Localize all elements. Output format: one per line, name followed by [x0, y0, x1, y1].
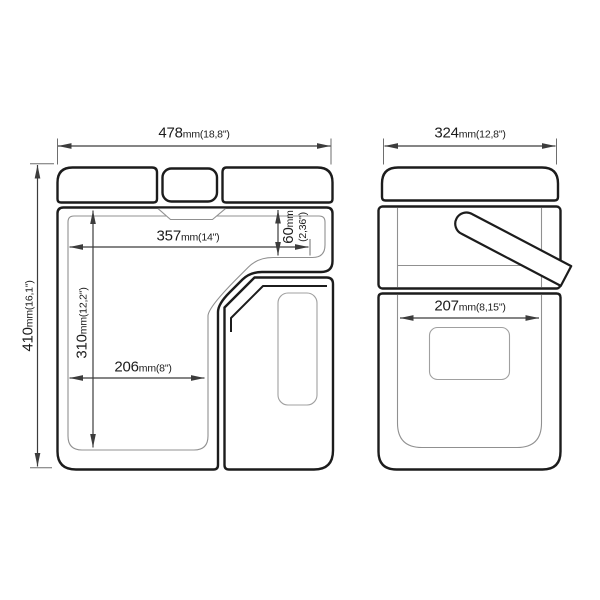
dimension-side-inner-width: 207mm(8,15") — [434, 300, 505, 315]
dimension-front-lower-inner-width: 206mm(8") — [114, 361, 171, 376]
dimension-front-inner-height: 310mm(12,2") — [76, 287, 91, 358]
side-recess — [430, 328, 510, 380]
dimension-side-total-width: 324mm(12,8") — [434, 127, 505, 142]
dimension-front-total-width: 478mm(18,8") — [158, 127, 229, 142]
dimension-front-inner-width: 357mm(14") — [157, 230, 220, 245]
front-lid-right — [223, 168, 333, 203]
side-lid — [382, 168, 558, 201]
front-lid-left — [58, 168, 158, 203]
front-lid-handle — [163, 169, 218, 202]
front-panel-recess — [278, 293, 317, 405]
technical-drawing: 478mm(18,8") 324mm(12,8") 410mm(16,1") 3… — [0, 0, 600, 600]
dimension-front-total-height: 410mm(16,1") — [22, 280, 37, 351]
dimension-front-step-height: 60mm (2,36") — [283, 210, 309, 243]
